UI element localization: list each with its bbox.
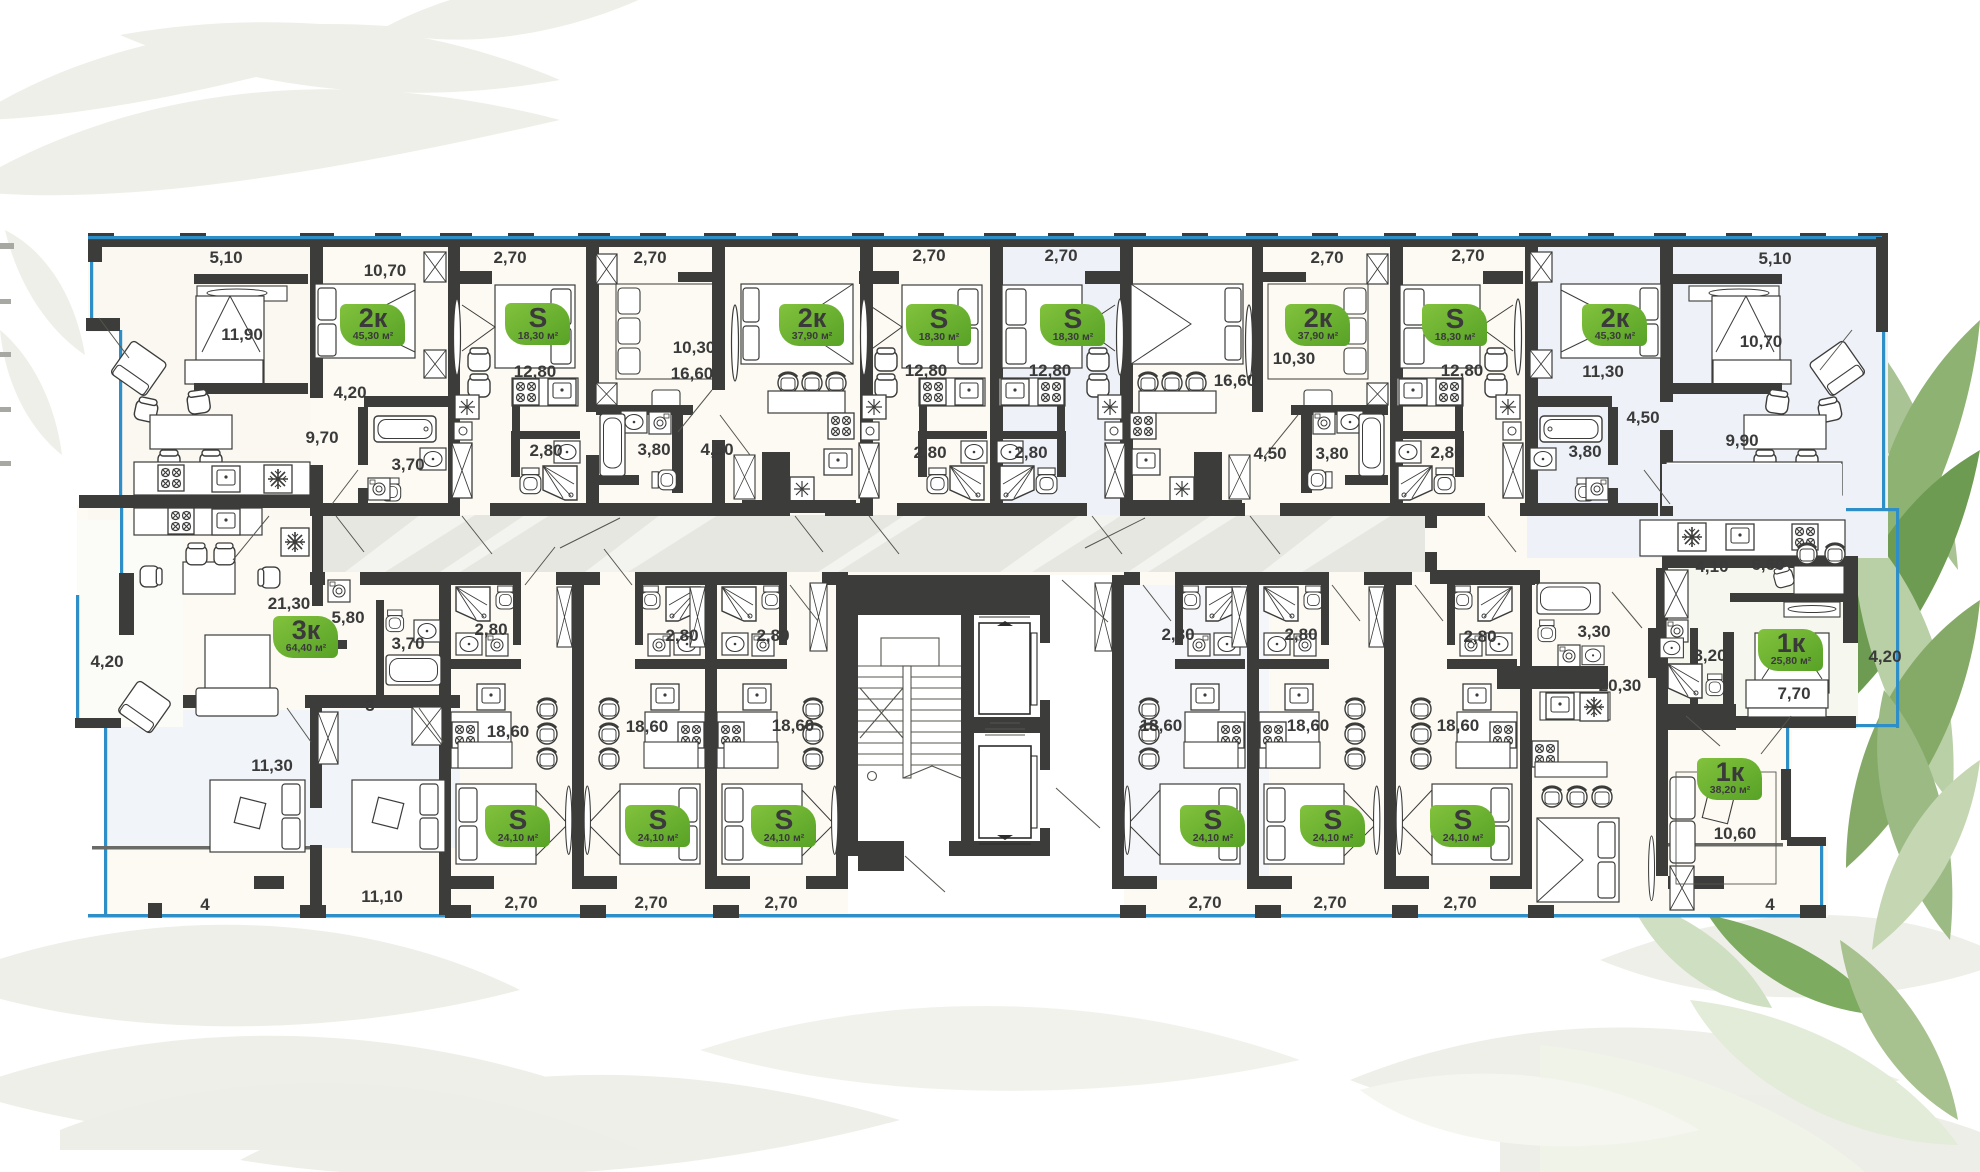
svg-text:2,70: 2,70 bbox=[1044, 246, 1077, 265]
svg-text:25,80 м²: 25,80 м² bbox=[1771, 655, 1812, 667]
svg-text:2к: 2к bbox=[1601, 303, 1630, 333]
svg-text:3к: 3к bbox=[292, 615, 321, 645]
svg-text:10,70: 10,70 bbox=[1740, 332, 1783, 351]
svg-text:10,70: 10,70 bbox=[364, 261, 407, 280]
svg-text:2,70: 2,70 bbox=[493, 248, 526, 267]
svg-text:12,80: 12,80 bbox=[514, 362, 557, 381]
svg-text:12,80: 12,80 bbox=[905, 361, 948, 380]
svg-text:18,30 м²: 18,30 м² bbox=[919, 331, 960, 343]
svg-text:4: 4 bbox=[1765, 895, 1775, 914]
svg-text:2к: 2к bbox=[1304, 303, 1333, 333]
svg-text:3,30: 3,30 bbox=[1577, 622, 1610, 641]
svg-text:4,10: 4,10 bbox=[1695, 557, 1728, 576]
svg-text:11,10: 11,10 bbox=[361, 887, 403, 906]
svg-text:2,70: 2,70 bbox=[912, 246, 945, 265]
svg-text:18,60: 18,60 bbox=[1140, 716, 1183, 735]
svg-text:37,90 м²: 37,90 м² bbox=[792, 330, 833, 342]
svg-text:3,70: 3,70 bbox=[391, 634, 424, 653]
svg-text:S: S bbox=[775, 804, 794, 835]
svg-text:9,70: 9,70 bbox=[305, 428, 338, 447]
svg-text:21,30: 21,30 bbox=[268, 594, 311, 613]
svg-text:18,60: 18,60 bbox=[626, 717, 669, 736]
svg-text:2,80: 2,80 bbox=[529, 441, 562, 460]
svg-text:7,70: 7,70 bbox=[1777, 684, 1810, 703]
svg-text:2,70: 2,70 bbox=[1188, 893, 1221, 912]
svg-text:16,60: 16,60 bbox=[1214, 371, 1257, 390]
svg-text:S: S bbox=[509, 804, 528, 835]
svg-text:24,10 м²: 24,10 м² bbox=[1443, 832, 1484, 844]
svg-text:2,80: 2,80 bbox=[665, 626, 698, 645]
svg-text:20,30: 20,30 bbox=[1599, 676, 1642, 695]
svg-text:16,60: 16,60 bbox=[671, 364, 714, 383]
svg-text:6,60: 6,60 bbox=[1751, 555, 1784, 574]
svg-text:4,50: 4,50 bbox=[1626, 408, 1659, 427]
svg-text:4,50: 4,50 bbox=[700, 440, 733, 459]
svg-text:45,30 м²: 45,30 м² bbox=[1595, 330, 1636, 342]
svg-text:2,80: 2,80 bbox=[1161, 625, 1194, 644]
svg-text:10,30: 10,30 bbox=[1273, 349, 1316, 368]
svg-text:18,60: 18,60 bbox=[487, 722, 530, 741]
svg-text:2,70: 2,70 bbox=[634, 893, 667, 912]
svg-text:2,80: 2,80 bbox=[1430, 443, 1463, 462]
svg-text:3: 3 bbox=[365, 696, 374, 715]
svg-text:4,20: 4,20 bbox=[333, 383, 366, 402]
svg-text:64,40 м²: 64,40 м² bbox=[286, 642, 327, 654]
svg-text:37,90 м²: 37,90 м² bbox=[1298, 330, 1339, 342]
svg-text:S: S bbox=[1446, 303, 1465, 334]
svg-text:3,20: 3,20 bbox=[1693, 646, 1726, 665]
svg-text:S: S bbox=[930, 303, 949, 334]
svg-text:24,10 м²: 24,10 м² bbox=[1193, 832, 1234, 844]
svg-text:S: S bbox=[529, 302, 548, 333]
svg-text:18,60: 18,60 bbox=[772, 716, 815, 735]
svg-text:2,80: 2,80 bbox=[474, 620, 507, 639]
svg-text:24,10 м²: 24,10 м² bbox=[638, 832, 679, 844]
svg-text:2,80: 2,80 bbox=[1284, 625, 1317, 644]
svg-text:S: S bbox=[1324, 804, 1343, 835]
svg-text:38,20 м²: 38,20 м² bbox=[1710, 784, 1751, 796]
svg-text:3,80: 3,80 bbox=[1568, 442, 1601, 461]
svg-text:2,70: 2,70 bbox=[1313, 893, 1346, 912]
svg-text:12,80: 12,80 bbox=[1441, 361, 1484, 380]
svg-text:11,90: 11,90 bbox=[221, 325, 263, 344]
svg-text:2,70: 2,70 bbox=[1443, 893, 1476, 912]
svg-text:3,70: 3,70 bbox=[391, 455, 424, 474]
svg-text:18,30 м²: 18,30 м² bbox=[1053, 331, 1094, 343]
svg-text:4,20: 4,20 bbox=[90, 652, 123, 671]
svg-text:2к: 2к bbox=[359, 303, 388, 333]
svg-text:2,80: 2,80 bbox=[1014, 443, 1047, 462]
svg-text:3,80: 3,80 bbox=[1315, 444, 1348, 463]
svg-text:11,30: 11,30 bbox=[1582, 362, 1624, 381]
svg-text:18,60: 18,60 bbox=[1437, 716, 1480, 735]
svg-text:S: S bbox=[649, 804, 668, 835]
svg-text:5,10: 5,10 bbox=[1758, 249, 1791, 268]
svg-text:S: S bbox=[1064, 303, 1083, 334]
svg-text:10,60: 10,60 bbox=[1714, 824, 1757, 843]
svg-text:18,30 м²: 18,30 м² bbox=[518, 330, 559, 342]
svg-text:2,80: 2,80 bbox=[1463, 627, 1496, 646]
svg-text:24,10 м²: 24,10 м² bbox=[764, 832, 805, 844]
svg-text:4: 4 bbox=[200, 895, 210, 914]
svg-text:2,70: 2,70 bbox=[504, 893, 537, 912]
svg-text:24,10 м²: 24,10 м² bbox=[498, 832, 539, 844]
svg-text:2,70: 2,70 bbox=[633, 248, 666, 267]
svg-text:2к: 2к bbox=[798, 303, 827, 333]
svg-text:45,30 м²: 45,30 м² bbox=[353, 330, 394, 342]
svg-text:5,10: 5,10 bbox=[209, 248, 242, 267]
svg-text:11,30: 11,30 bbox=[251, 756, 293, 775]
svg-text:S: S bbox=[1454, 804, 1473, 835]
svg-text:S: S bbox=[1204, 804, 1223, 835]
svg-text:1к: 1к bbox=[1777, 628, 1806, 658]
svg-text:2,80: 2,80 bbox=[756, 626, 789, 645]
svg-text:2,70: 2,70 bbox=[1451, 246, 1484, 265]
svg-text:3,80: 3,80 bbox=[637, 440, 670, 459]
svg-text:12,80: 12,80 bbox=[1029, 361, 1072, 380]
svg-text:2,70: 2,70 bbox=[1310, 248, 1343, 267]
svg-text:24,10 м²: 24,10 м² bbox=[1313, 832, 1354, 844]
svg-text:18,60: 18,60 bbox=[1287, 716, 1330, 735]
svg-text:5,80: 5,80 bbox=[331, 608, 364, 627]
svg-text:2,70: 2,70 bbox=[764, 893, 797, 912]
svg-text:18,30 м²: 18,30 м² bbox=[1435, 331, 1476, 343]
svg-text:4,50: 4,50 bbox=[1253, 444, 1286, 463]
svg-text:4,20: 4,20 bbox=[1868, 647, 1901, 666]
svg-text:2,80: 2,80 bbox=[913, 443, 946, 462]
svg-text:1к: 1к bbox=[1716, 757, 1745, 787]
svg-text:9,90: 9,90 bbox=[1725, 431, 1758, 450]
svg-text:10,30: 10,30 bbox=[673, 338, 716, 357]
